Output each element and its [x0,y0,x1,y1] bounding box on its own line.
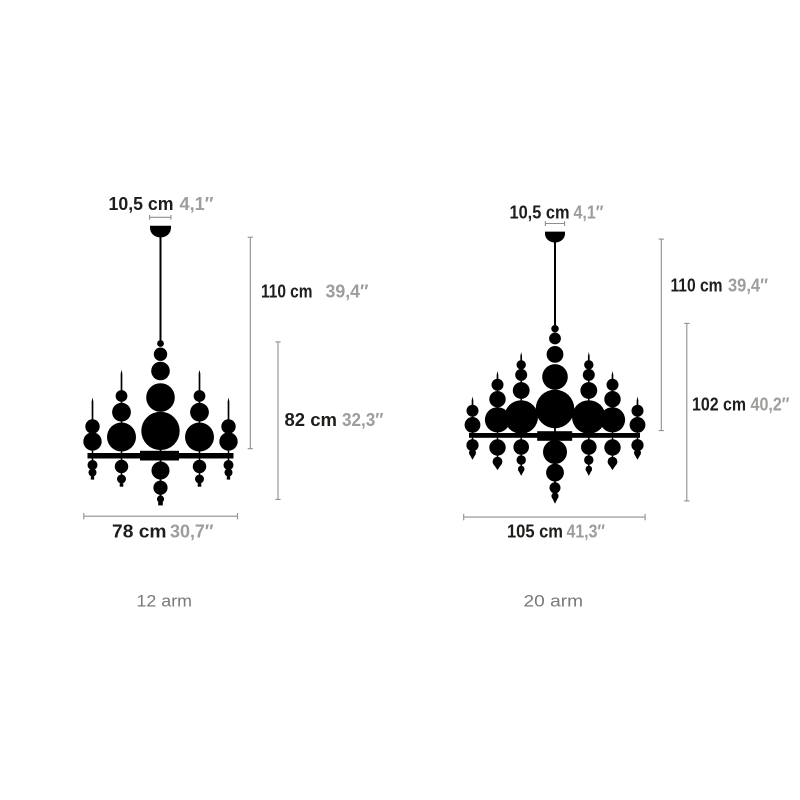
svg-text:32,3″: 32,3″ [342,410,384,430]
svg-text:10,5 cm: 10,5 cm [109,194,174,214]
svg-text:4,1″: 4,1″ [574,203,604,223]
svg-text:39,4″: 39,4″ [728,276,768,296]
svg-text:40,2″: 40,2″ [751,395,790,415]
svg-text:20 arm: 20 arm [524,593,584,611]
svg-text:105 cm: 105 cm [507,521,563,541]
svg-text:39,4″: 39,4″ [326,282,369,302]
svg-text:10,5 cm: 10,5 cm [510,203,570,223]
svg-text:30,7″: 30,7″ [170,521,214,541]
svg-text:102 cm: 102 cm [692,395,746,415]
svg-text:82 cm: 82 cm [285,410,338,430]
svg-text:78 cm: 78 cm [112,521,167,541]
svg-text:110 cm: 110 cm [671,276,723,296]
svg-text:4,1″: 4,1″ [180,194,214,214]
svg-text:41,3″: 41,3″ [567,521,606,541]
svg-text:110 cm: 110 cm [261,282,313,302]
svg-text:12 arm: 12 arm [137,593,193,611]
